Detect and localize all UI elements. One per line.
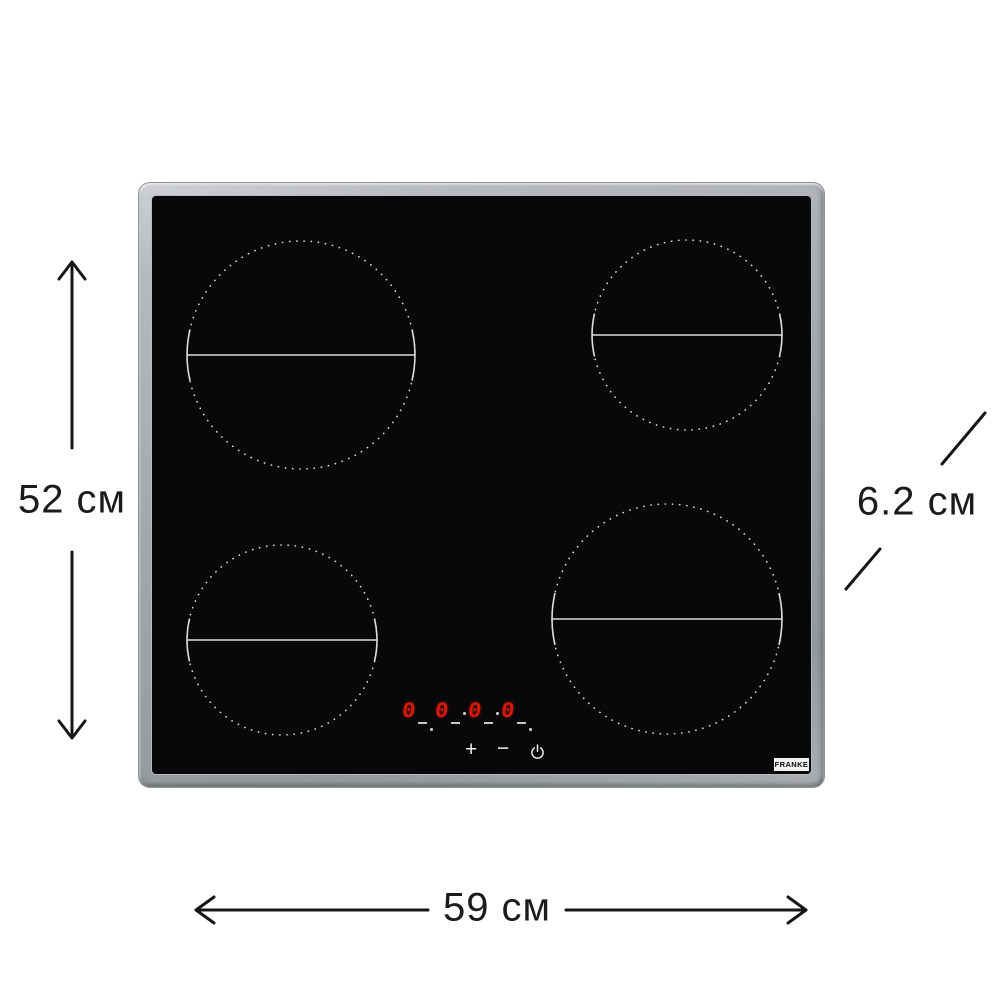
burner-top-left (183, 237, 419, 473)
digit-value: 0 (500, 701, 516, 723)
minus-symbol: − (497, 737, 509, 761)
display-dot (496, 712, 499, 715)
power-icon (529, 743, 546, 765)
display-digit-zone3: 0 (467, 701, 500, 733)
product-dimension-diagram: 0 0 0 0 + − (0, 0, 1000, 1000)
hob-frame: 0 0 0 0 + − (138, 182, 825, 788)
brand-logo: FRANKE (773, 757, 810, 772)
burner-bottom-right (548, 500, 786, 738)
depth-dimension-label: 6.2 см (857, 480, 977, 525)
height-dimension-label: 52 см (18, 478, 126, 523)
display-dot (529, 728, 532, 731)
display-digit-zone1: 0 (401, 701, 434, 733)
hob-glass (151, 195, 812, 775)
digit-underscore (484, 722, 493, 724)
digit-value: 0 (401, 701, 417, 723)
display-dot (430, 728, 433, 731)
display-digit-zone4: 0 (500, 701, 533, 733)
digit-underscore (451, 722, 460, 724)
burner-top-right (588, 236, 786, 434)
cooktop-display: 0 0 0 0 (401, 701, 533, 733)
digit-underscore (418, 722, 427, 724)
width-dimension-label: 59 см (443, 886, 551, 931)
display-digit-zone2: 0 (434, 701, 467, 733)
plus-symbol: + (465, 738, 477, 762)
burner-bottom-left (183, 541, 381, 739)
digit-underscore (517, 722, 526, 724)
display-dot (463, 712, 466, 715)
digit-value: 0 (434, 701, 450, 723)
digit-value: 0 (467, 701, 483, 723)
